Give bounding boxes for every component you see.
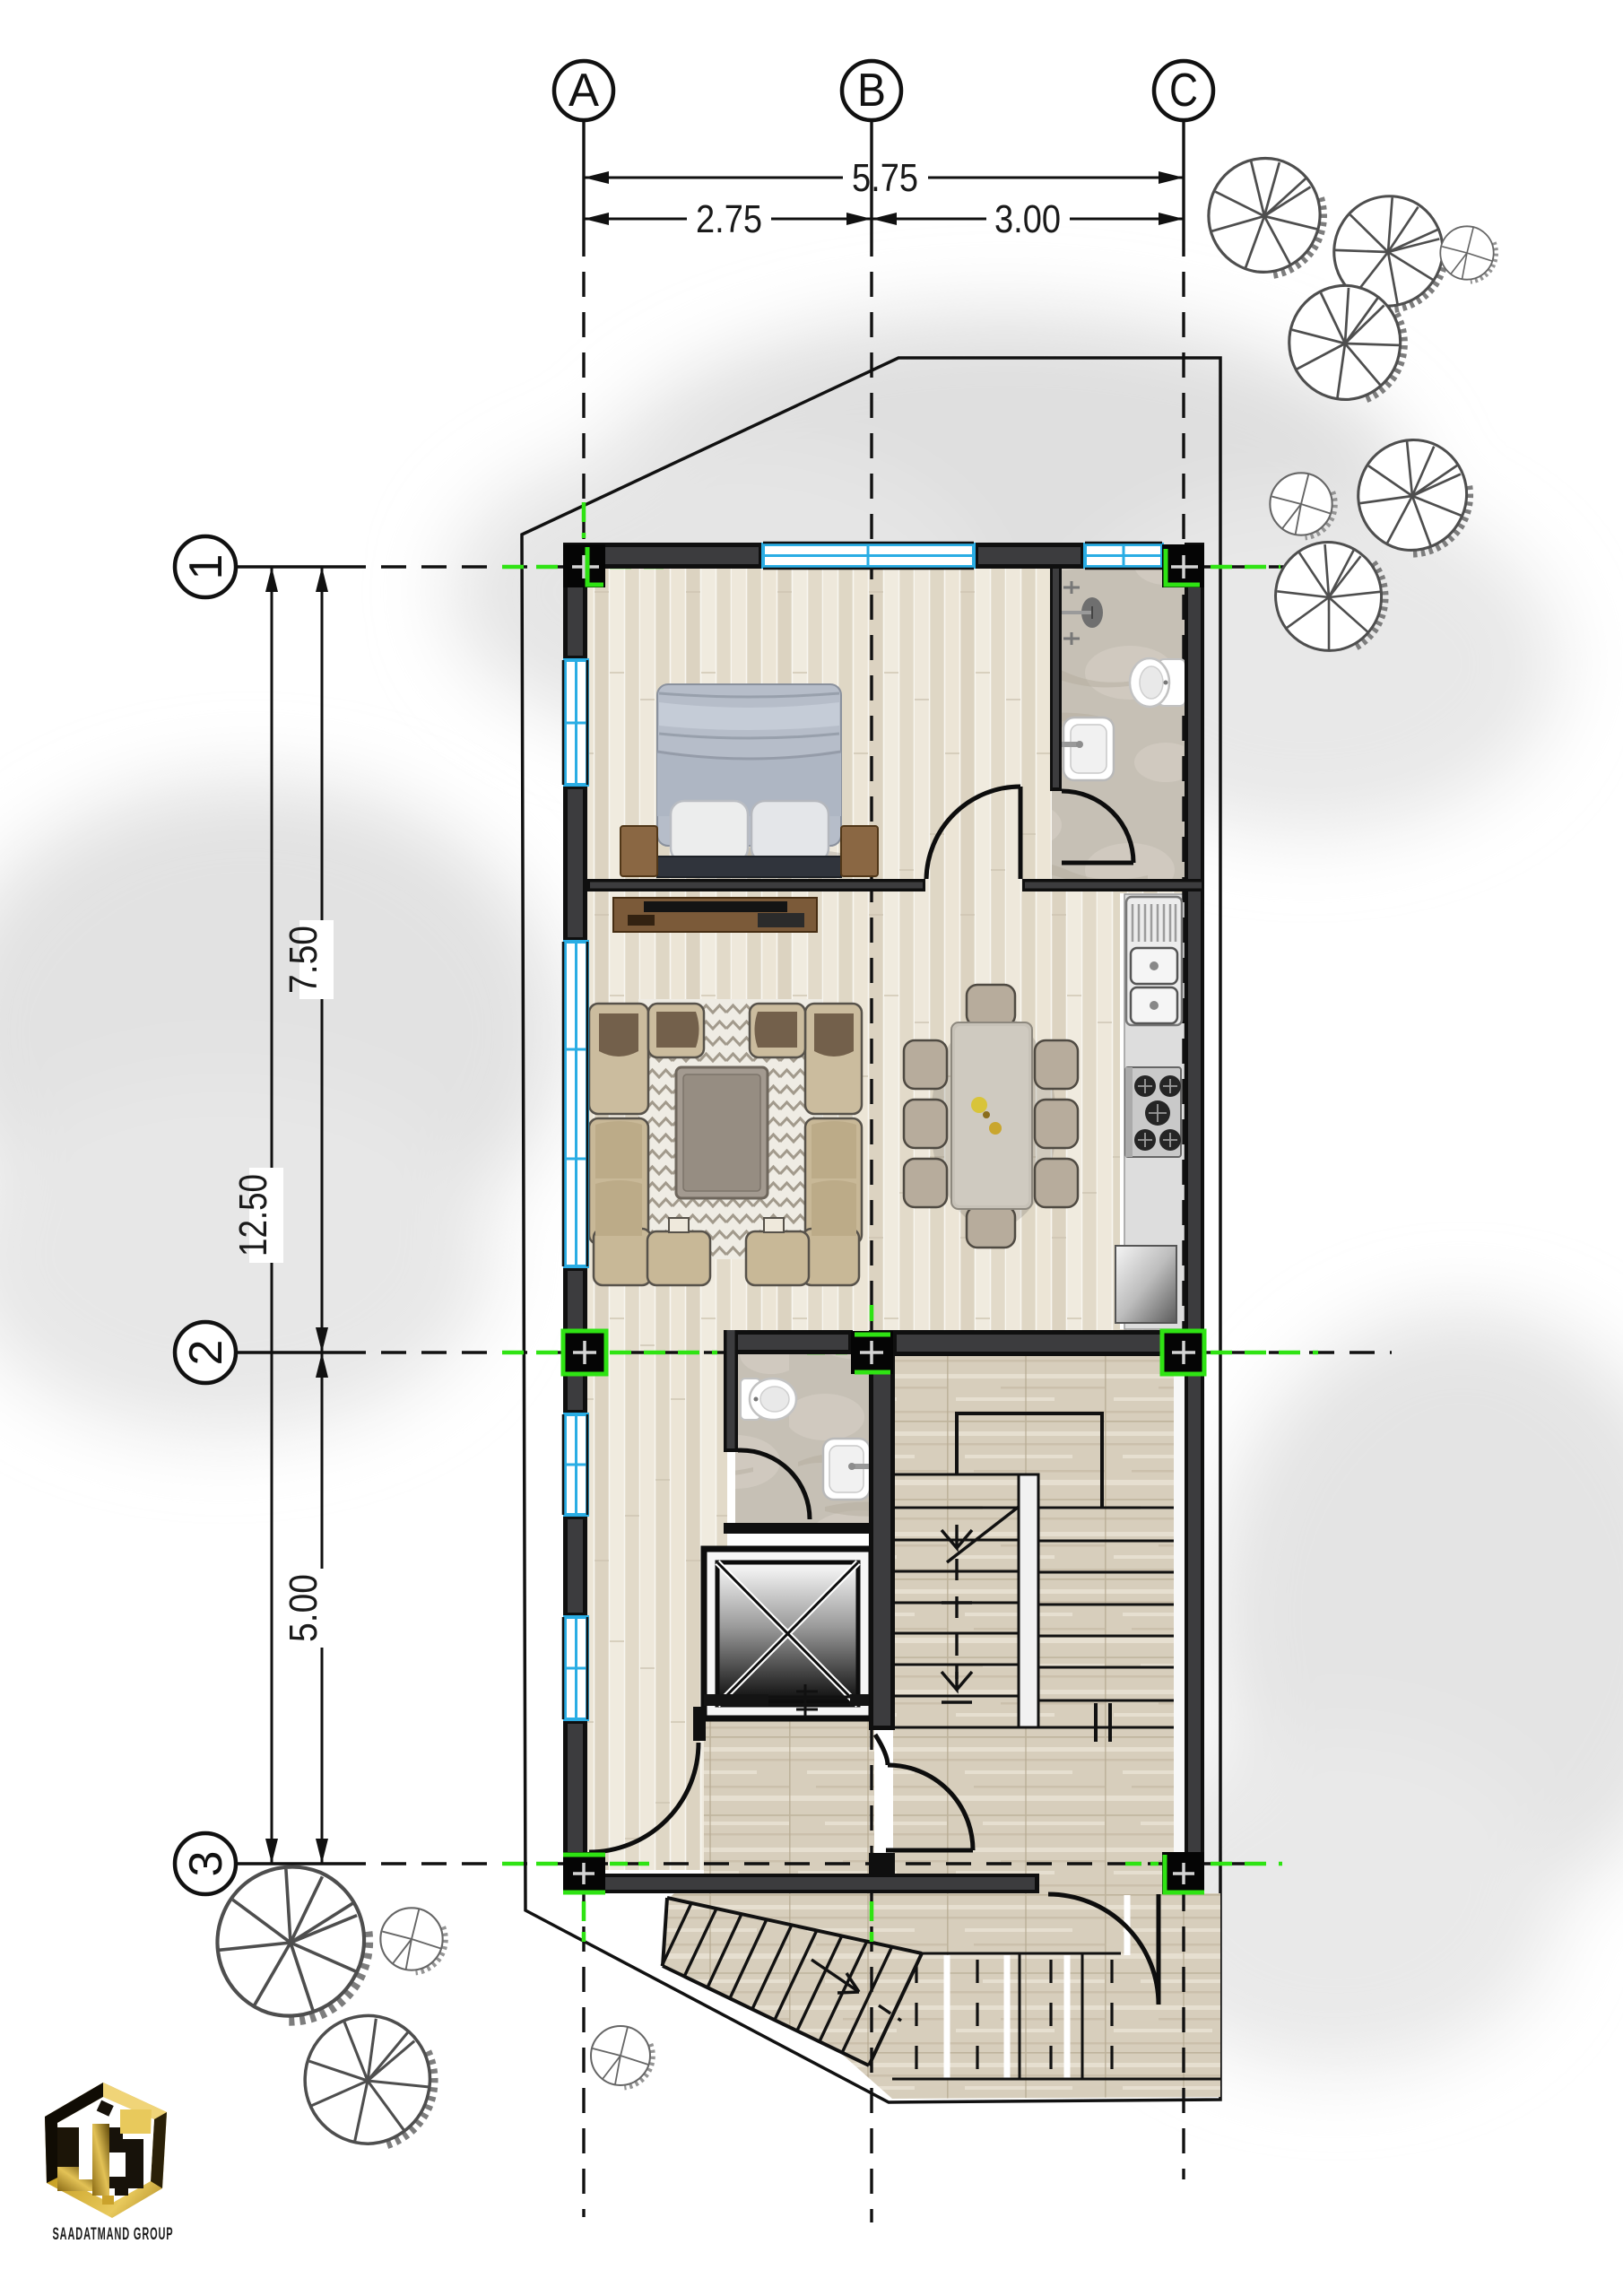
svg-text:1: 1 xyxy=(180,554,232,580)
svg-text:5.75: 5.75 xyxy=(852,156,918,200)
svg-text:3.00: 3.00 xyxy=(994,197,1061,241)
svg-text:C: C xyxy=(1169,65,1198,117)
svg-text:7.50: 7.50 xyxy=(282,926,325,994)
svg-text:3: 3 xyxy=(180,1851,232,1877)
svg-text:SAADATMAND GROUP: SAADATMAND GROUP xyxy=(53,2225,174,2244)
svg-text:B: B xyxy=(857,65,886,117)
svg-text:12.50: 12.50 xyxy=(231,1174,275,1257)
svg-text:A: A xyxy=(568,65,599,117)
svg-text:2.75: 2.75 xyxy=(696,197,762,241)
svg-text:2: 2 xyxy=(180,1340,232,1366)
svg-text:5.00: 5.00 xyxy=(282,1574,325,1642)
